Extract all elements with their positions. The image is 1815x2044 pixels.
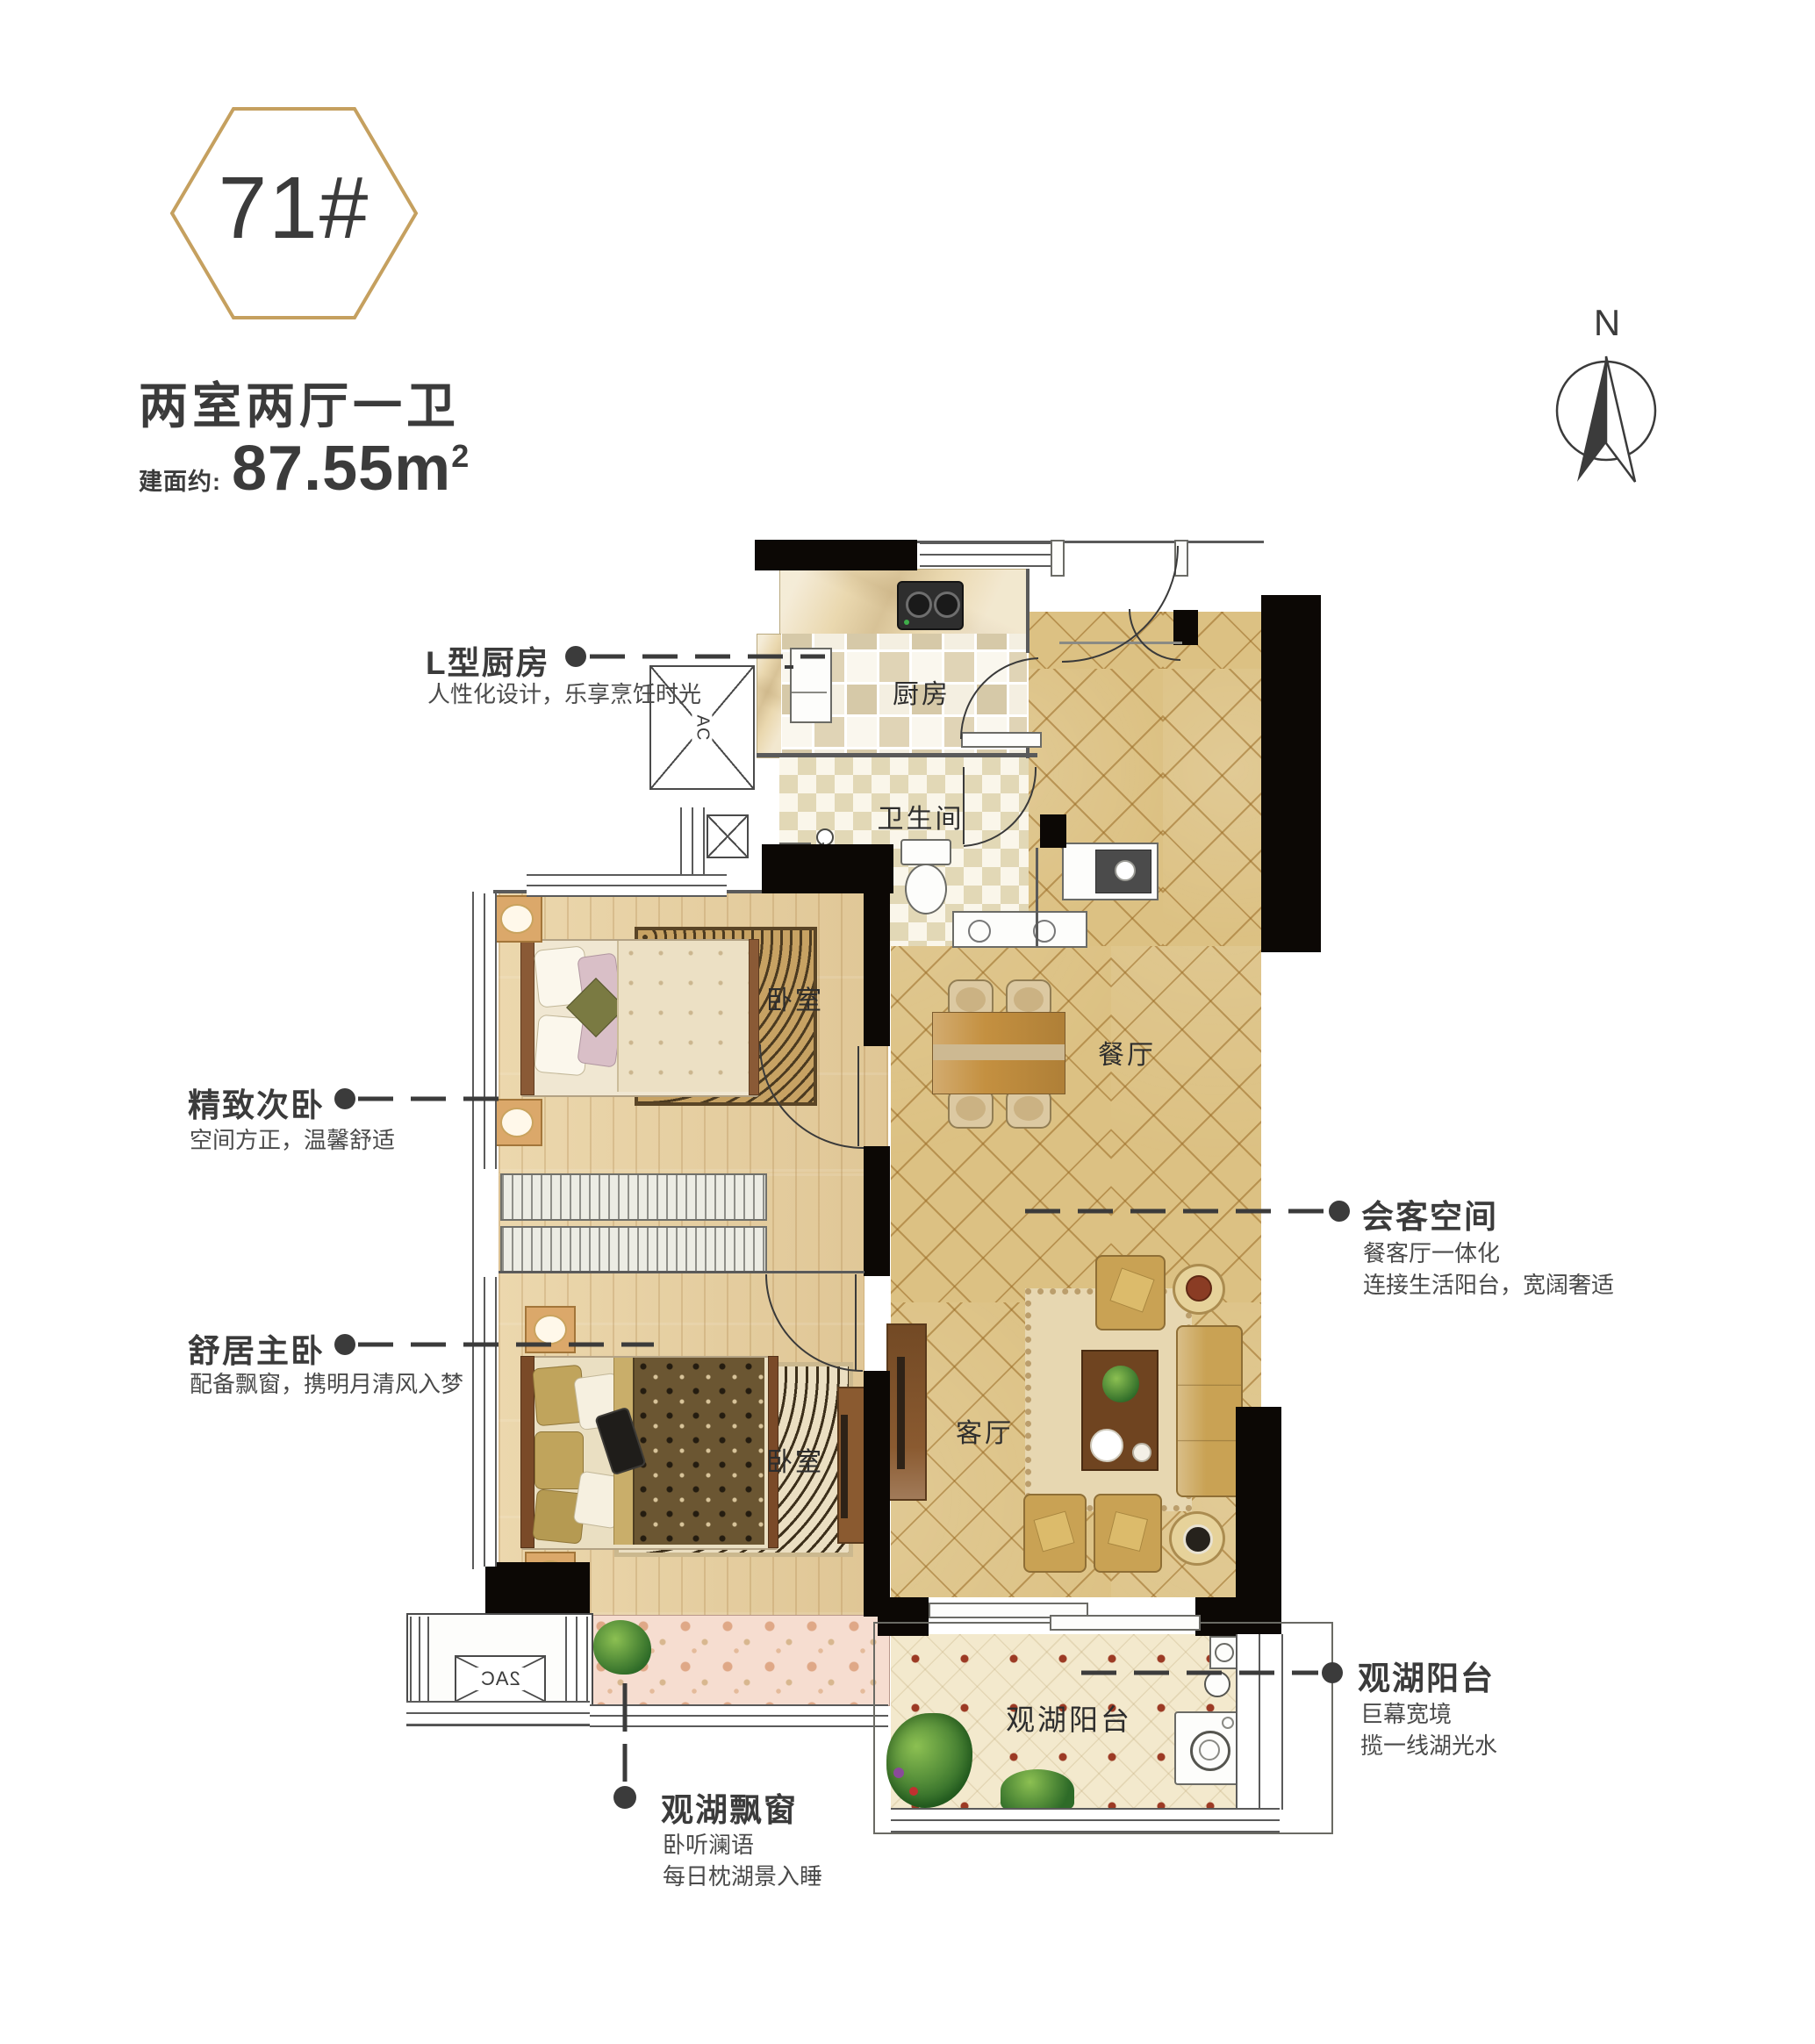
- sofa-three-seat: [1176, 1325, 1243, 1497]
- window-kitchen-left: [680, 807, 705, 874]
- throw-pillow: [1033, 1510, 1074, 1552]
- leader-bullet-second-bedroom: [334, 1088, 355, 1109]
- callout-lake-balcony-title: 观湖阳台: [1358, 1652, 1495, 1699]
- headboard: [520, 1356, 534, 1548]
- side-table-top: [1173, 1264, 1225, 1315]
- plate: [1090, 1429, 1123, 1462]
- callout-master-bedroom-title: 舒居主卧: [188, 1324, 325, 1372]
- vanity-strip: [952, 911, 1087, 948]
- window-second-bedroom-top: [527, 874, 727, 897]
- toilet-tank: [900, 839, 951, 865]
- ac-box-small: [707, 814, 749, 858]
- cup: [1132, 1443, 1151, 1462]
- kitchen-door-leaf: [961, 732, 1042, 748]
- ac-bottom-sill: [406, 1701, 590, 1725]
- wall-bed2-right-a: [864, 893, 890, 1046]
- bay-window-sill: [590, 1704, 888, 1727]
- living-tv-cabinet: [886, 1323, 927, 1501]
- window-master-bedroom: [472, 1277, 497, 1567]
- tv-screen: [897, 1357, 905, 1469]
- wall-bath-right: [1036, 848, 1038, 946]
- stove: [897, 581, 964, 630]
- room-label-master-bedroom: 卧室: [766, 1440, 824, 1479]
- wall-entry-jamb: [1173, 610, 1198, 645]
- area-label: 建面约:: [139, 463, 221, 497]
- second-bed: [520, 939, 759, 1097]
- armchair-top: [1095, 1255, 1166, 1330]
- room-label-dining: 餐厅: [1098, 1033, 1156, 1072]
- wall-kitchen-right-upper: [1026, 569, 1029, 653]
- callout-guest-space-sub2: 连接生活阳台，宽阔奢适: [1363, 1269, 1614, 1302]
- page-title: 两室两厅一卫: [139, 367, 460, 438]
- room-label-second-bedroom: 卧室: [766, 979, 824, 1017]
- wall-master-right: [864, 1371, 890, 1617]
- badge-number: 71#: [172, 158, 416, 259]
- entry-door-jamb-right: [1174, 540, 1188, 577]
- compass-arrow-right: [1606, 356, 1635, 482]
- throw-pillow: [1109, 1267, 1154, 1312]
- callout-second-bedroom-title: 精致次卧: [188, 1079, 325, 1126]
- area-row: 建面约: 87.55m 2: [139, 437, 469, 500]
- master-bed: [520, 1356, 778, 1550]
- blanket: [617, 941, 750, 1092]
- nightstand: [491, 1099, 542, 1146]
- wall-master-bottom: [485, 1562, 590, 1615]
- wall-hall-divider: [499, 1271, 864, 1273]
- footboard: [749, 939, 759, 1095]
- wardrobe-strip: [500, 1173, 767, 1221]
- armchair-bottom-mid: [1094, 1494, 1162, 1573]
- armchair-bottom-left: [1023, 1494, 1087, 1573]
- room-label-kitchen: 厨房: [893, 672, 951, 711]
- entry-door-jamb-left: [1051, 540, 1065, 577]
- ac-unit-bottom: 2AC: [455, 1655, 546, 1703]
- wall-right-lower: [1236, 1407, 1281, 1635]
- ac-bottom-mullion-right: [565, 1617, 588, 1703]
- callout-lake-balcony-sub1: 巨幕宽境: [1360, 1698, 1452, 1731]
- side-table-bottom: [1169, 1511, 1225, 1566]
- callout-guest-space-sub1: 餐客厅一体化: [1363, 1237, 1500, 1270]
- callout-bay-window-sub1: 卧听澜语: [663, 1829, 754, 1861]
- entry-vanity: [1062, 843, 1159, 900]
- shower-head: [816, 828, 834, 846]
- leader-bullet-kitchen: [565, 646, 586, 667]
- sliding-door-panel-2: [1050, 1615, 1201, 1631]
- compass-north-label: N: [1567, 302, 1646, 344]
- ac-top-label: AC: [692, 711, 712, 744]
- wall-bath-corner: [762, 844, 893, 893]
- leader-bullet-master-bedroom: [334, 1334, 355, 1355]
- toilet-bowl: [905, 864, 947, 914]
- room-label-living: 客厅: [956, 1411, 1014, 1450]
- area-superscript: 2: [451, 438, 469, 475]
- callout-lake-balcony-sub2: 揽一线湖光水: [1360, 1730, 1497, 1762]
- window-second-bedroom: [472, 893, 497, 1169]
- callout-kitchen-sub: 人性化设计，乐享烹饪时光: [427, 678, 701, 711]
- bay-window-plant: [593, 1620, 651, 1675]
- callout-bay-window-title: 观湖飘窗: [661, 1783, 798, 1831]
- wall-bed2-right-b: [864, 1146, 890, 1276]
- headboard: [520, 939, 534, 1095]
- wall-kitchen-bath-divider: [757, 753, 1037, 757]
- entry-threshold: [1059, 642, 1182, 644]
- ac-bottom-label: 2AC: [477, 1667, 524, 1690]
- wardrobe-strip: [500, 1226, 767, 1273]
- room-label-balcony: 观湖阳台: [1006, 1696, 1132, 1739]
- dining-table: [932, 1012, 1065, 1094]
- nightstand: [525, 1306, 576, 1353]
- room-label-bathroom: 卫生间: [878, 797, 965, 836]
- callout-bay-window-sub2: 每日枕湖景入睡: [663, 1861, 822, 1893]
- callout-second-bedroom-sub: 空间方正，温馨舒适: [190, 1124, 395, 1157]
- wall-niche: [1040, 814, 1066, 848]
- window-kitchen-top: [920, 542, 1051, 567]
- floorplan-page: { "header": { "badge": "71#", "title": "…: [0, 0, 1815, 2044]
- leader-bullet-guest-space: [1329, 1201, 1350, 1222]
- callout-guest-space-title: 会客空间: [1361, 1190, 1498, 1237]
- callout-kitchen-title: L型厨房: [426, 636, 550, 684]
- tv-screen: [841, 1415, 848, 1518]
- area-value: 87.55m: [232, 437, 451, 500]
- wall-right-upper: [1261, 595, 1321, 952]
- throw-pillow: [1108, 1511, 1148, 1552]
- leader-bullet-bay-window: [613, 1786, 636, 1809]
- wall-kitchen-top: [755, 540, 917, 570]
- coffee-table: [1081, 1350, 1159, 1471]
- callout-master-bedroom-sub: 配备飘窗，携明月清风入梦: [190, 1368, 463, 1401]
- blanket-pattern: [633, 1358, 764, 1545]
- pillow-gold-2: [534, 1431, 584, 1489]
- compass-circle: [1557, 362, 1655, 460]
- compass-arrow-left: [1577, 356, 1606, 482]
- fridge: [790, 648, 832, 723]
- nightstand: [491, 895, 542, 943]
- table-plant: [1102, 1366, 1139, 1402]
- ac-bottom-mullion-left: [410, 1617, 429, 1703]
